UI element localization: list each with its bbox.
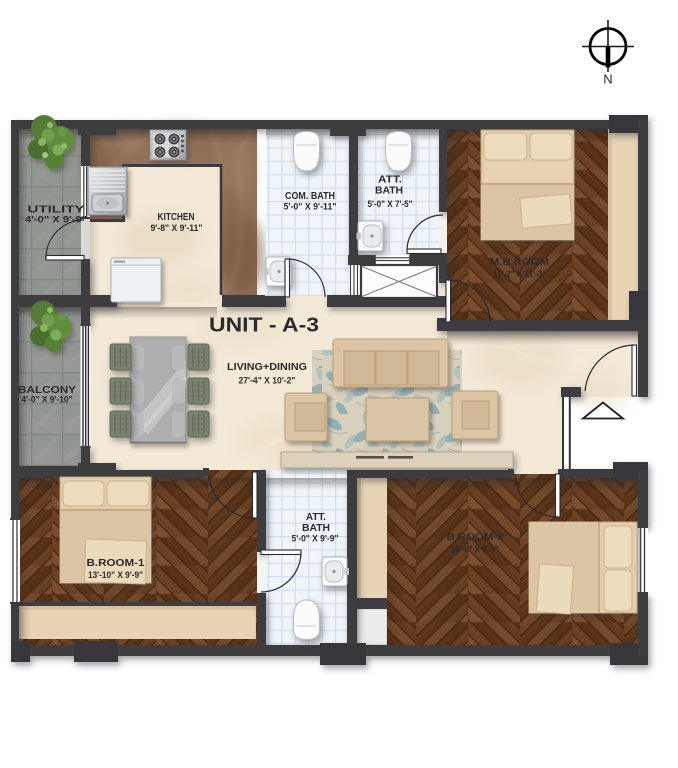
svg-text:9'-8" X 9'-11": 9'-8" X 9'-11" bbox=[151, 223, 203, 234]
svg-text:11'-2" X 11'-3": 11'-2" X 11'-3" bbox=[493, 269, 546, 280]
svg-text:N: N bbox=[603, 72, 612, 87]
svg-text:27'-4" X 10'-2": 27'-4" X 10'-2" bbox=[239, 376, 296, 387]
svg-text:LIVING+DINING: LIVING+DINING bbox=[227, 361, 307, 373]
svg-text:5'-0" X 7'-5": 5'-0" X 7'-5" bbox=[368, 199, 413, 210]
svg-text:13'-10" X 9'-9": 13'-10" X 9'-9" bbox=[88, 570, 143, 581]
svg-text:4'-0" X 9'-9": 4'-0" X 9'-9" bbox=[25, 215, 87, 226]
svg-text:B.ROOM-2: B.ROOM-2 bbox=[447, 531, 504, 543]
svg-text:COM. BATH: COM. BATH bbox=[285, 190, 335, 202]
svg-text:4'-0" X 9'-10": 4'-0" X 9'-10" bbox=[22, 395, 73, 405]
svg-text:16'-6" X 9'-9": 16'-6" X 9'-9" bbox=[451, 545, 499, 556]
svg-text:M.B.ROOM: M.B.ROOM bbox=[490, 256, 549, 268]
svg-text:KITCHEN: KITCHEN bbox=[158, 211, 195, 223]
svg-text:5'-0" X 9'-11": 5'-0" X 9'-11" bbox=[284, 202, 337, 213]
svg-text:UNIT - A-3: UNIT - A-3 bbox=[209, 315, 319, 337]
svg-text:BATH: BATH bbox=[375, 185, 403, 197]
svg-text:BATH: BATH bbox=[302, 522, 330, 534]
svg-text:5'-0" X 9'-9": 5'-0" X 9'-9" bbox=[292, 534, 339, 545]
svg-text:B.ROOM-1: B.ROOM-1 bbox=[87, 557, 145, 569]
